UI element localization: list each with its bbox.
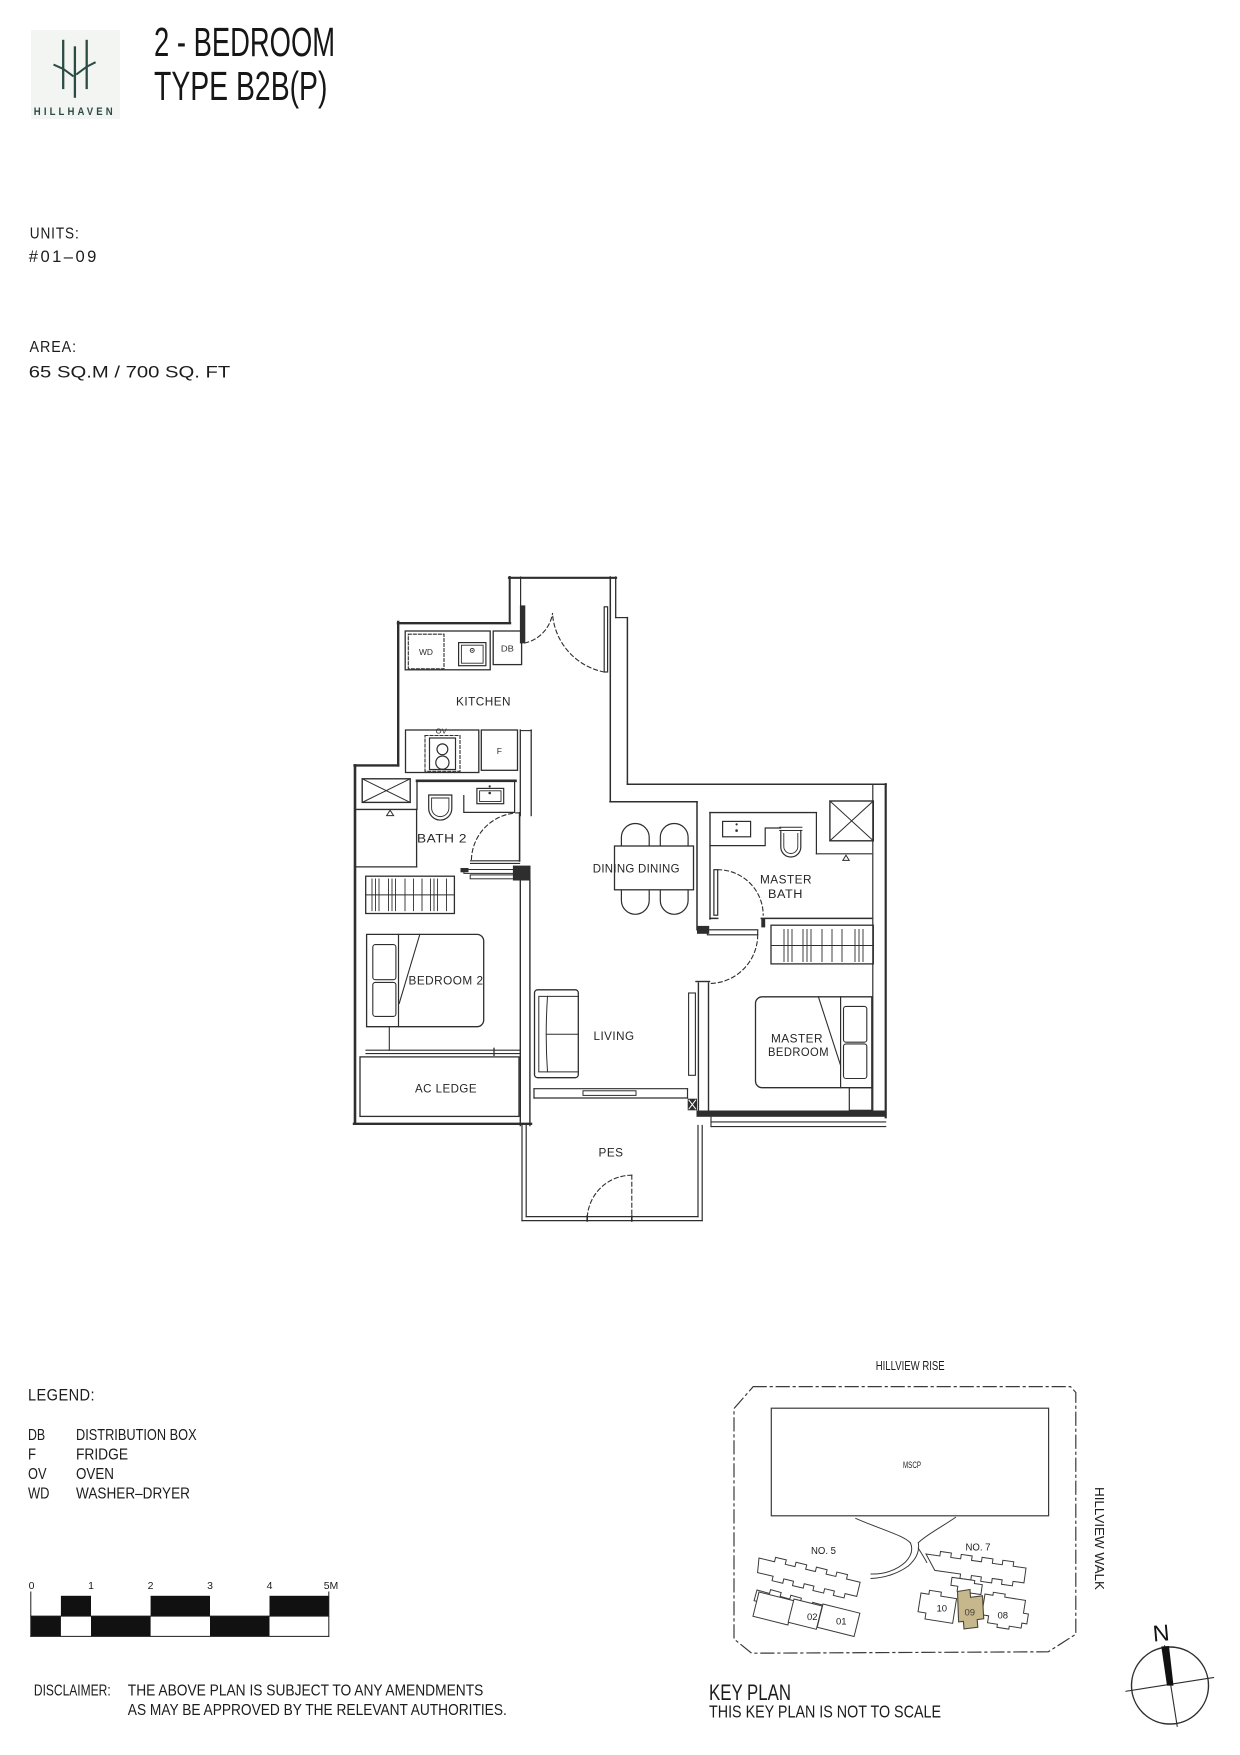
svg-text:DB: DB [501,645,514,654]
svg-text:09: 09 [965,1608,976,1619]
svg-text:NO. 7: NO. 7 [966,1543,991,1554]
svg-text:KITCHEN: KITCHEN [456,695,511,709]
svg-text:BATH: BATH [768,887,803,901]
svg-text:65 SQ.M / 700 SQ. FT: 65 SQ.M / 700 SQ. FT [29,363,231,382]
svg-text:N: N [1152,1619,1171,1646]
svg-text:DISCLAIMER:: DISCLAIMER: [34,1683,111,1700]
svg-text:DB: DB [28,1427,45,1444]
svg-text:LEGEND:: LEGEND: [28,1386,95,1405]
svg-text:#01–09: #01–09 [29,247,99,266]
svg-text:DISTRIBUTION BOX: DISTRIBUTION BOX [76,1427,197,1444]
svg-text:10: 10 [937,1604,948,1615]
svg-text:F: F [28,1446,36,1463]
svg-text:WD: WD [419,648,433,657]
svg-text:OV: OV [28,1466,47,1483]
svg-text:THIS KEY PLAN IS NOT TO SCALE: THIS KEY PLAN IS NOT TO SCALE [709,1702,941,1722]
svg-text:FRIDGE: FRIDGE [76,1446,128,1463]
svg-text:1: 1 [88,1580,94,1592]
svg-text:HILLVIEW WALK: HILLVIEW WALK [1092,1487,1107,1590]
svg-text:0: 0 [29,1580,35,1592]
svg-text:2: 2 [148,1580,154,1592]
svg-text:AREA:: AREA: [30,339,78,356]
svg-text:AS MAY BE APPROVED BY THE RELE: AS MAY BE APPROVED BY THE RELEVANT AUTHO… [128,1702,507,1719]
svg-text:UNITS:: UNITS: [30,226,80,243]
svg-text:3: 3 [207,1580,213,1592]
svg-text:PES: PES [599,1145,624,1159]
svg-text:MSCP: MSCP [903,1460,921,1470]
svg-text:OV: OV [436,727,447,736]
svg-text:THE ABOVE PLAN IS SUBJECT TO A: THE ABOVE PLAN IS SUBJECT TO ANY AMENDME… [128,1683,484,1700]
svg-text:F: F [497,746,502,756]
svg-text:01: 01 [836,1617,847,1628]
svg-text:AC LEDGE: AC LEDGE [415,1082,477,1096]
svg-text:BATH 2: BATH 2 [417,832,467,846]
svg-text:5M: 5M [324,1580,339,1592]
svg-text:WD: WD [28,1485,50,1502]
svg-text:DINING DINING: DINING DINING [593,861,680,875]
svg-text:MASTER: MASTER [760,872,812,886]
svg-text:NO. 5: NO. 5 [811,1546,836,1557]
svg-text:02: 02 [807,1612,818,1623]
svg-text:08: 08 [998,1611,1009,1622]
svg-text:LIVING: LIVING [594,1029,635,1043]
svg-text:4: 4 [267,1580,273,1592]
svg-text:MASTER: MASTER [771,1031,823,1045]
svg-text:WASHER–DRYER: WASHER–DRYER [76,1485,190,1502]
svg-text:BEDROOM: BEDROOM [768,1045,829,1059]
svg-text:HILLVIEW RISE: HILLVIEW RISE [876,1358,945,1373]
svg-text:BEDROOM 2: BEDROOM 2 [409,974,484,988]
svg-text:OVEN: OVEN [76,1466,114,1483]
